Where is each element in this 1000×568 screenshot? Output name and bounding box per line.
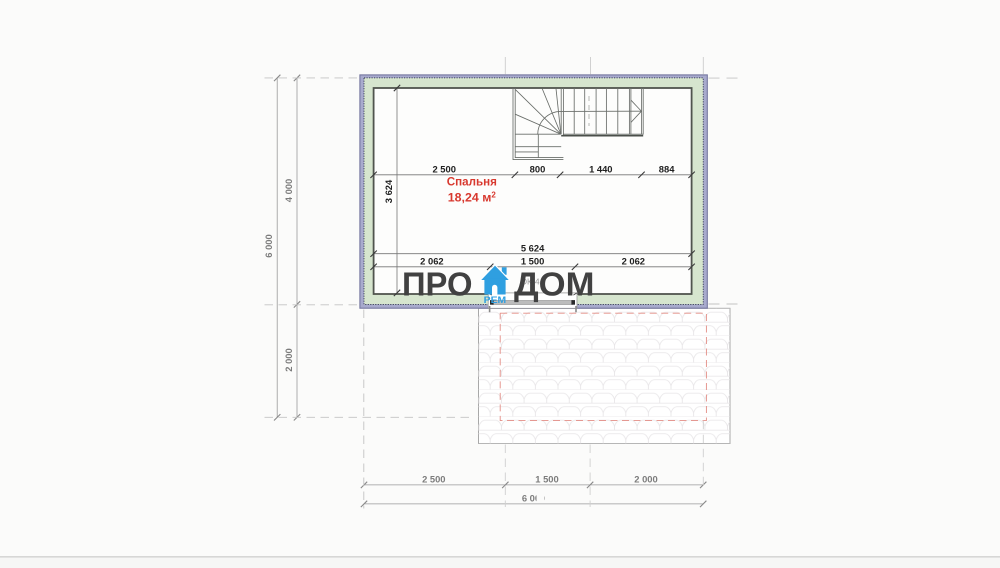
svg-text:4 000: 4 000 [283, 179, 294, 202]
svg-text:2 500: 2 500 [432, 164, 455, 175]
svg-text:1 440: 1 440 [589, 164, 612, 175]
svg-text:РЕМ: РЕМ [484, 294, 507, 305]
svg-text:18,24 м2: 18,24 м2 [448, 190, 497, 204]
svg-text:2 062: 2 062 [622, 256, 645, 267]
svg-text:3 624: 3 624 [383, 179, 394, 203]
svg-text:2 500: 2 500 [422, 473, 445, 484]
svg-text:884: 884 [659, 164, 675, 175]
svg-text:2 000: 2 000 [634, 473, 657, 484]
svg-text:2 000: 2 000 [283, 348, 294, 371]
svg-text:Спальня: Спальня [447, 176, 497, 189]
svg-text:800: 800 [530, 164, 546, 175]
svg-text:5 624: 5 624 [521, 243, 545, 254]
svg-text:1 500: 1 500 [535, 473, 558, 484]
svg-text:1 500: 1 500 [521, 256, 544, 267]
svg-text:2 062: 2 062 [420, 256, 443, 267]
svg-text:ДОМ: ДОМ [514, 267, 595, 304]
svg-text:6 000: 6 000 [263, 234, 274, 257]
svg-text:ПРО: ПРО [402, 267, 473, 304]
